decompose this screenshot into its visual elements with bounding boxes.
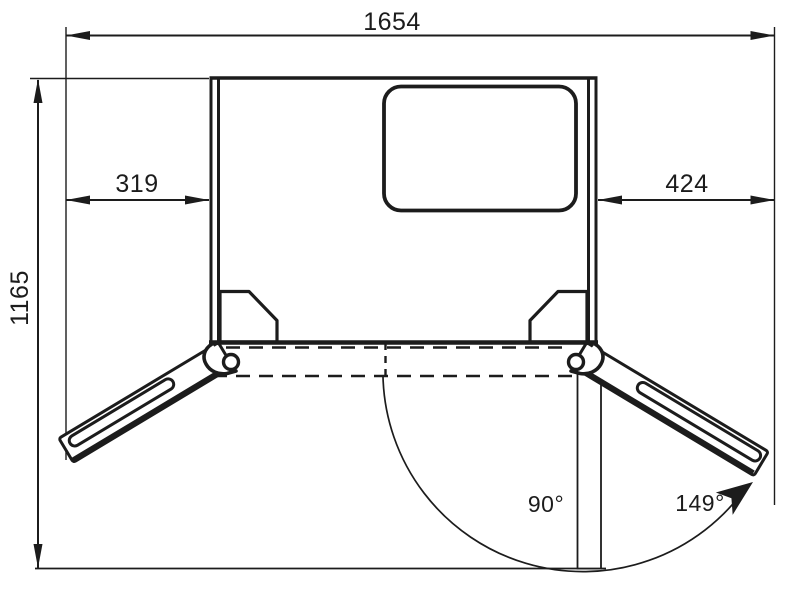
left-door-handle	[67, 377, 176, 448]
corner-gusset-right	[530, 292, 587, 343]
arrowhead-down-icon	[34, 544, 43, 568]
dim-left-clearance: 319	[66, 170, 209, 205]
hinge-left-pivot	[224, 355, 239, 370]
label-right-clearance: 424	[665, 170, 708, 198]
arrowhead-right-icon	[185, 196, 209, 205]
label-angle-149: 149°	[675, 490, 725, 516]
cabinet	[209, 77, 598, 343]
arrowhead-left-icon	[66, 31, 90, 40]
arrowhead-left-icon	[598, 196, 622, 205]
drawing-canvas: 1654 1165 319 424	[0, 0, 793, 592]
label-angle-90: 90°	[528, 491, 564, 517]
dim-overall-depth: 1165	[6, 79, 43, 568]
arrowhead-left-icon	[66, 196, 90, 205]
left-door-inner-face	[73, 366, 230, 460]
corner-gusset-left	[220, 292, 277, 343]
label-overall-width: 1654	[363, 8, 421, 36]
closed-door-outline-dashed	[213, 343, 579, 379]
cabinet-top-recess-panel	[384, 87, 576, 211]
hinge-right-pivot	[569, 355, 584, 370]
label-overall-depth: 1165	[6, 270, 34, 326]
hinges	[204, 344, 603, 374]
dim-right-clearance: 424	[598, 170, 775, 205]
arrowhead-right-icon	[751, 31, 775, 40]
arrowhead-right-icon	[751, 196, 775, 205]
arrowhead-up-icon	[34, 79, 43, 103]
label-left-clearance: 319	[115, 170, 158, 198]
right-door-handle	[635, 380, 762, 463]
dimension-drawing: 1654 1165 319 424	[0, 0, 793, 592]
dim-overall-width: 1654	[66, 8, 775, 40]
door-at-90-degrees	[578, 353, 602, 569]
